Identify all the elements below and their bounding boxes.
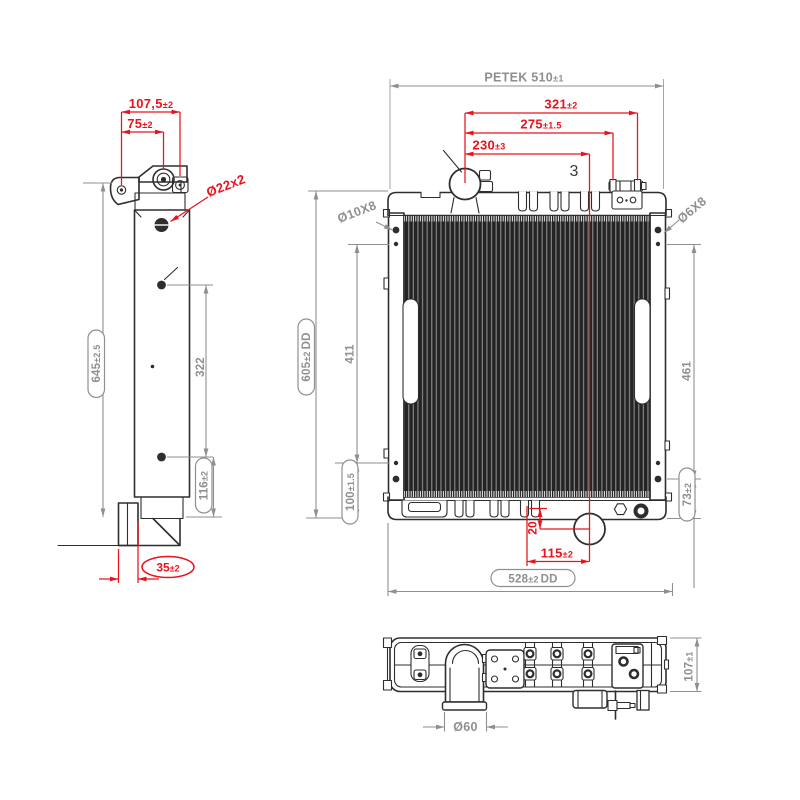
dim-outlet-x-115: 115±2 [541, 546, 573, 561]
dim-bottom-left-100: 100±1.5 [345, 473, 357, 511]
dim-bottom-right-73: 73±2 [682, 483, 694, 507]
side-lower-tank [141, 497, 183, 519]
right-side-frame [650, 213, 666, 500]
mounting-foot [119, 503, 139, 546]
core-notch-left [403, 299, 419, 404]
dim-height-645: 645±2.5 [91, 344, 103, 382]
bottom-view [384, 637, 669, 720]
mounting-hole-upper [157, 281, 166, 290]
bottom-tank-tabs [402, 501, 540, 518]
drain-bolt [608, 691, 635, 719]
left-slot [411, 646, 429, 682]
ear-hole [120, 188, 123, 191]
side-neck-flange [135, 193, 185, 210]
dim-outlet-offset-230: 230±3 [472, 138, 505, 153]
dim-bracket-inner-275: 275±1.5 [520, 117, 561, 132]
radiator-core [404, 216, 650, 498]
outlet-pipe [443, 645, 487, 711]
side-view-dimensions-red: 107,5±2 75±2 Ø22x2 35±2 [99, 96, 247, 583]
label-qty-3: 3 [570, 163, 579, 180]
dim-plug-22x2: Ø22x2 [204, 171, 247, 200]
dim-hole-span-322: 322 [195, 357, 207, 377]
side-view [58, 166, 190, 546]
dim-pipe-60: Ø60 [453, 720, 478, 734]
dim-hole-span-411: 411 [345, 344, 357, 364]
core-header-comb [404, 216, 650, 222]
dim-hole-span-461: 461 [682, 361, 694, 381]
core-notch-right [635, 299, 651, 404]
upper-mount-bracket [609, 180, 646, 210]
dim-hole-right-6x8: Ø6X8 [675, 194, 709, 226]
sensor-boss [636, 506, 647, 517]
center-plate [483, 650, 525, 688]
side-view-dimensions-gray: 645±2.5 322 116±2 [83, 183, 222, 517]
dim-width-75: 75±2 [127, 116, 153, 131]
dim-overall-height-605: 605±2DD [301, 332, 313, 381]
dim-hole-bottom-116: 116±2 [199, 471, 211, 501]
dim-bottom-width-528: 528±2DD [508, 574, 557, 586]
pin-hole [151, 365, 155, 369]
radiator-technical-drawing: 645±2.5 322 116±2 107,5±2 75±2 Ø22x2 35±… [0, 0, 800, 800]
drain-plug-hex [614, 504, 626, 515]
bracket-ear [111, 178, 140, 205]
core-footer-comb [404, 491, 650, 497]
dim-overall-width-510: PETEK 510±1 [484, 71, 563, 85]
dim-depth-107: 107±1 [684, 651, 696, 681]
drain-stub [637, 691, 649, 711]
filler-neck [450, 169, 493, 214]
left-side-frame [389, 213, 405, 500]
filler-leader-line [444, 151, 462, 173]
dim-bracket-outer-321: 321±2 [544, 97, 577, 112]
drawing-sheet: 645±2.5 322 116±2 107,5±2 75±2 Ø22x2 35±… [0, 0, 800, 800]
top-tank-slots [519, 192, 600, 211]
pipe-flange [443, 702, 487, 710]
dim-foot-35: 35±2 [156, 561, 179, 575]
right-plate [612, 644, 643, 688]
dim-width-107-5: 107,5±2 [129, 96, 174, 111]
front-view [384, 151, 672, 545]
dim-hole-left-10x8: Ø10X8 [336, 198, 379, 226]
mounting-hole-lower [157, 453, 166, 462]
